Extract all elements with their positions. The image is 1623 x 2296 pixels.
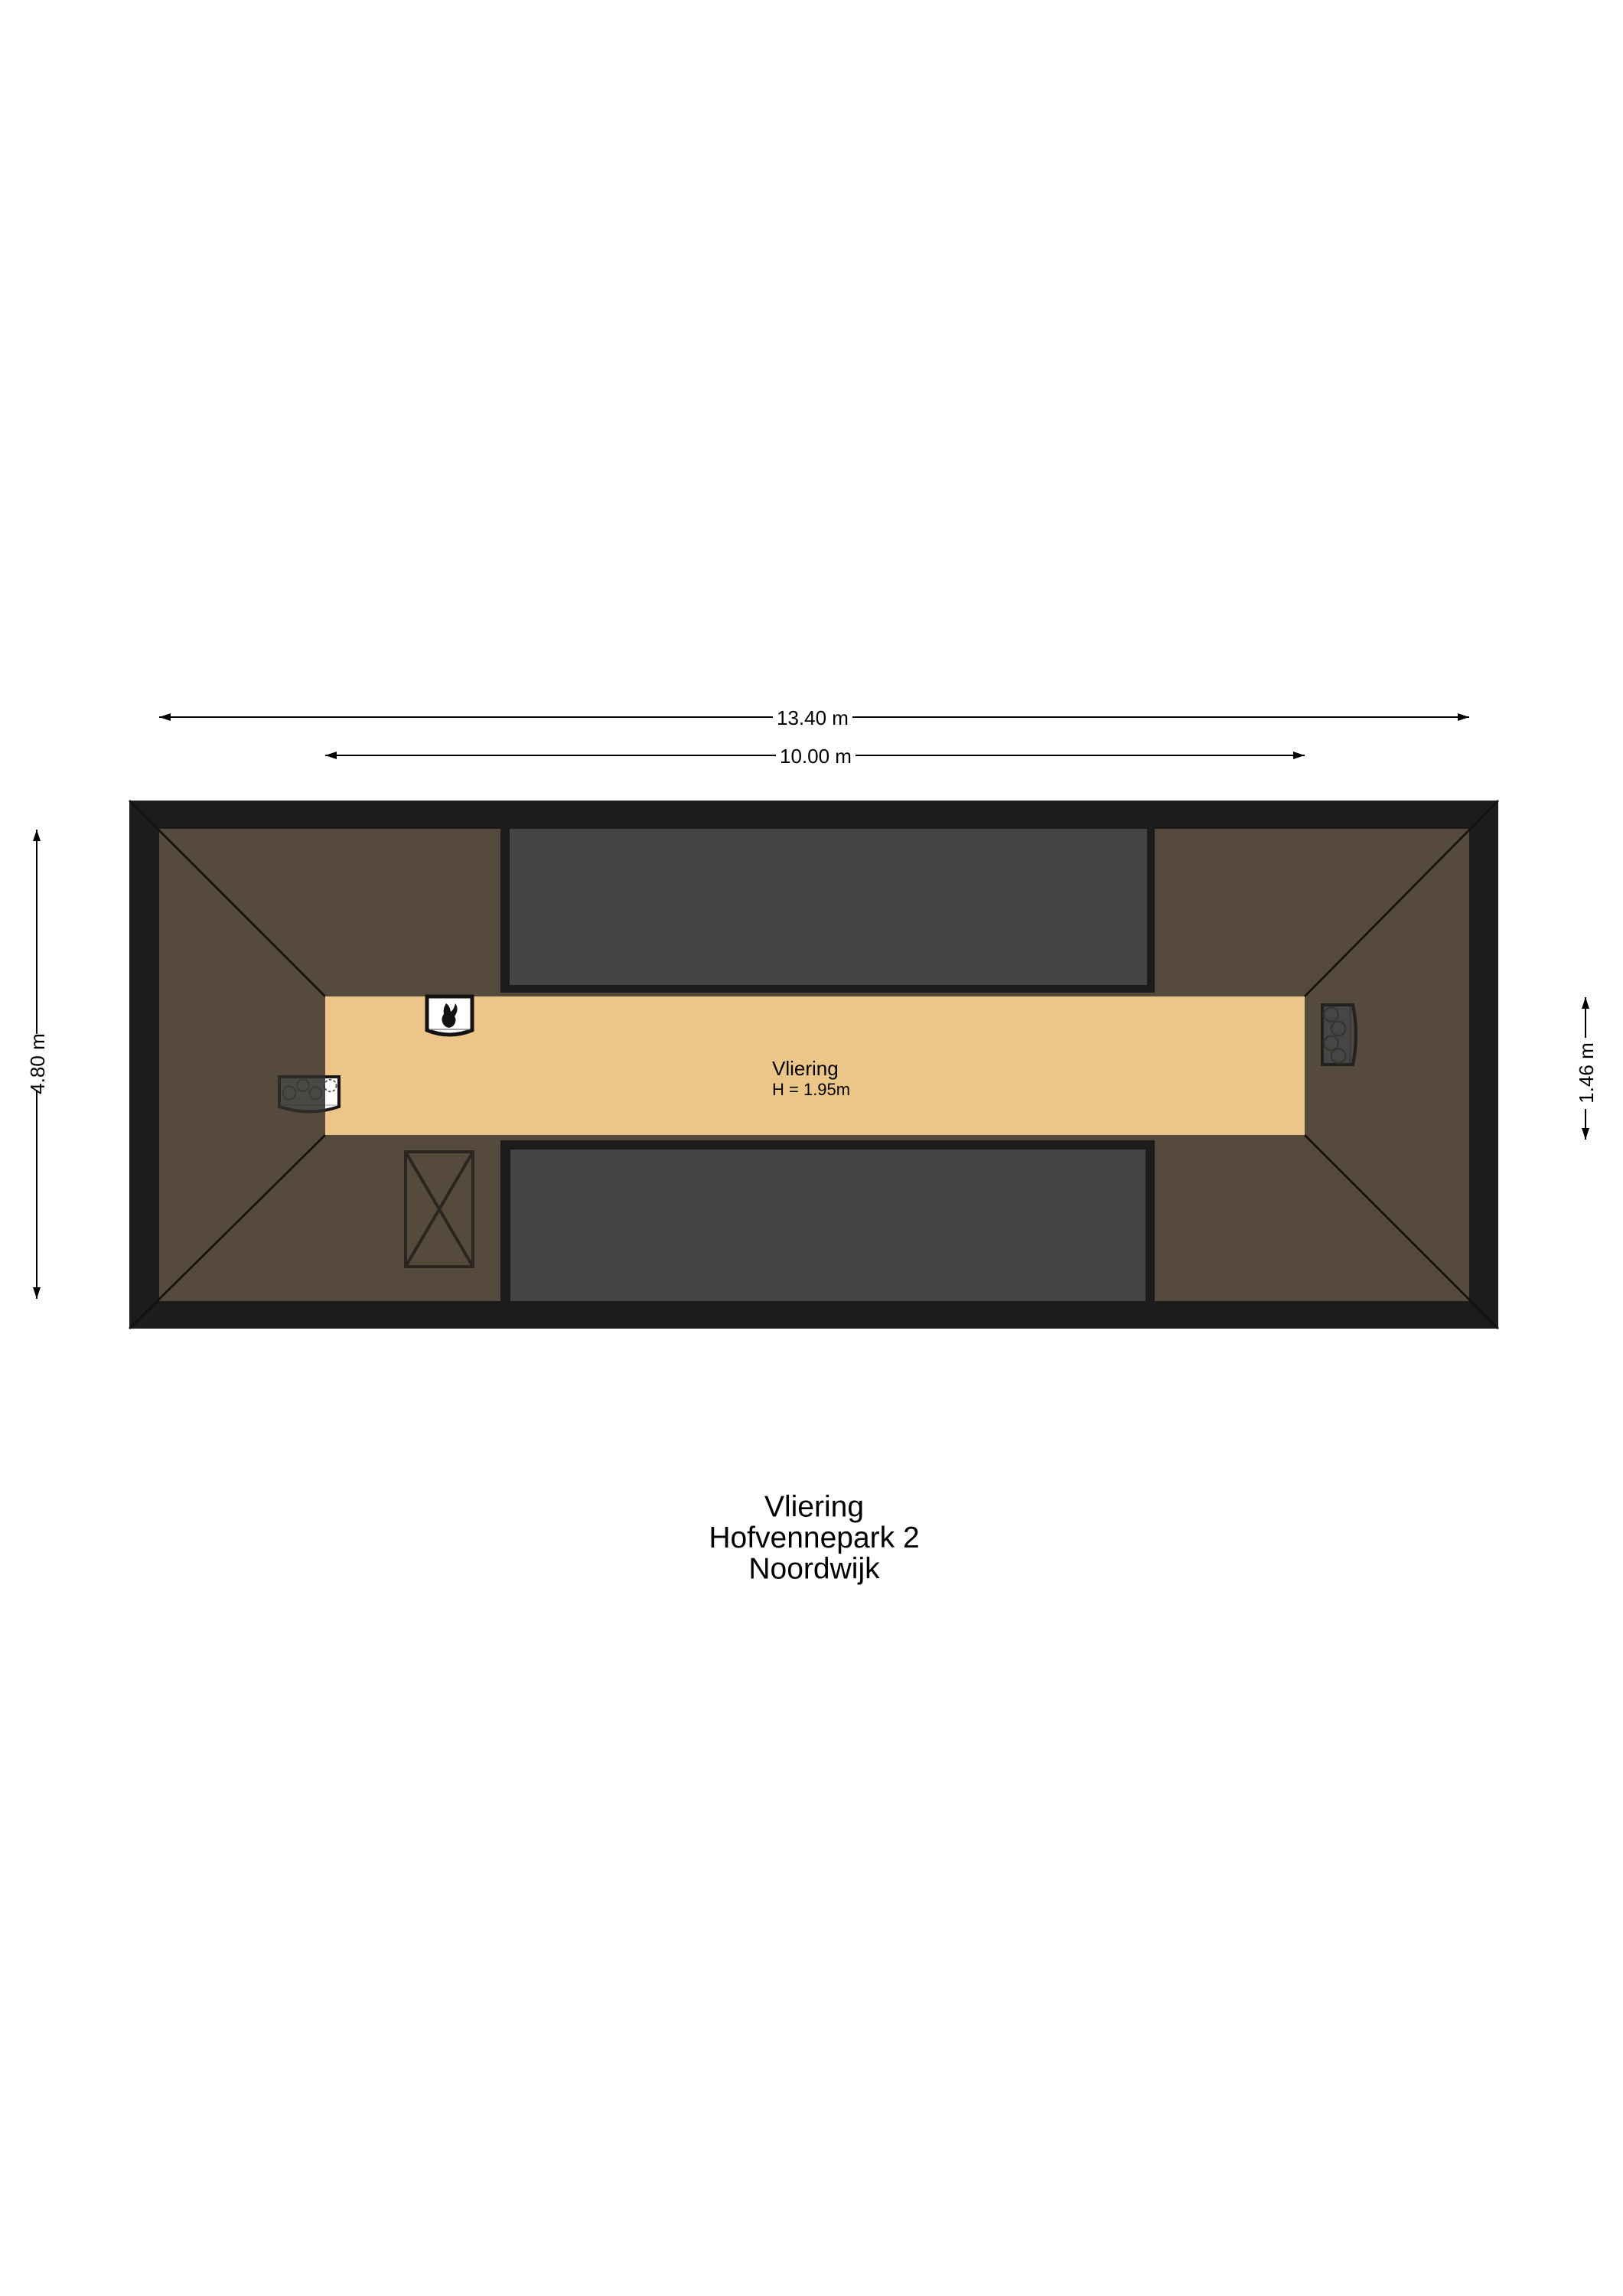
svg-text:13.40 m: 13.40 m <box>777 706 849 729</box>
svg-text:1.46 m: 1.46 m <box>1575 1042 1598 1104</box>
svg-text:10.00 m: 10.00 m <box>780 745 852 768</box>
svg-text:Vliering: Vliering <box>764 1491 864 1524</box>
svg-text:Vliering: Vliering <box>772 1057 839 1080</box>
svg-text:4.80 m: 4.80 m <box>26 1033 49 1094</box>
svg-text:Noordwijk: Noordwijk <box>748 1553 880 1586</box>
svg-text:Hofvennepark 2: Hofvennepark 2 <box>709 1521 919 1554</box>
svg-text:H = 1.95m: H = 1.95m <box>772 1080 850 1099</box>
